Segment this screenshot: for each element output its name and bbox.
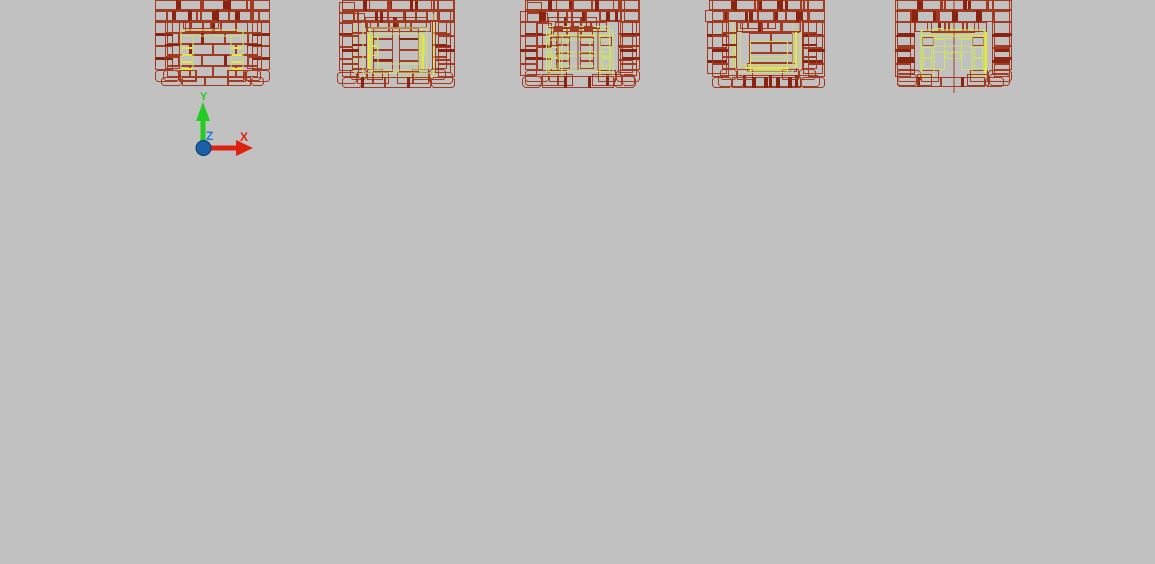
cad-viewport[interactable]: 1 ряд2 ряд3 ряд4 ряд5 ряд6 ряд7 ряд8 ряд…: [0, 0, 1155, 564]
ucs-icon: YZX: [150, 88, 265, 166]
course-drawing-15[interactable]: [897, 0, 1010, 88]
ucs-y-arrowhead: [196, 102, 210, 121]
course-diagram-11[interactable]: 11 ряд: [155, 0, 270, 88]
course-drawing-13[interactable]: [520, 0, 640, 88]
ucs-z-label: Z: [206, 129, 213, 143]
ucs-y-label: Y: [200, 91, 208, 103]
course-diagram-13[interactable]: 13 ряд: [520, 0, 640, 88]
ucs-x-label: X: [240, 130, 248, 144]
course-diagram-12[interactable]: 12 ряд: [342, 0, 455, 88]
course-diagram-14[interactable]: 14 ряд: [712, 0, 825, 88]
course-drawing-14[interactable]: [712, 0, 825, 88]
course-drawing-12[interactable]: [342, 0, 455, 88]
course-drawing-11[interactable]: [155, 0, 270, 88]
ucs-x-shaft: [208, 146, 236, 151]
course-diagram-15[interactable]: 15 ряд: [897, 0, 1010, 88]
